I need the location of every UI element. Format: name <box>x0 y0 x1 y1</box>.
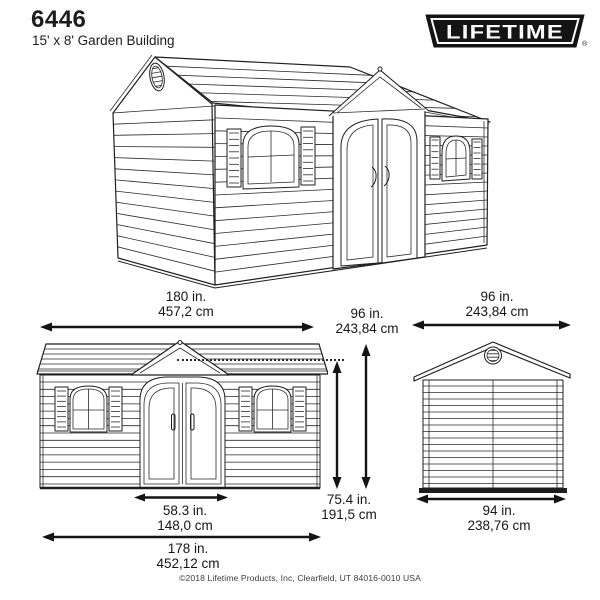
dim-value-metric: 238,76 cm <box>437 518 561 533</box>
dim-label-overall-depth: 96 in. 243,84 cm <box>435 289 559 319</box>
dim-value-metric: 457,2 cm <box>124 304 248 319</box>
front-right-window <box>239 386 306 432</box>
dim-value-inches: 96 in. <box>305 306 429 321</box>
front-elevation-illustration <box>33 340 328 492</box>
side-gable-vent-icon <box>484 347 502 364</box>
logo-brand-text: LIFETIME <box>446 23 564 44</box>
front-left-window <box>55 386 122 432</box>
dim-label-overall-width: 180 in. 457,2 cm <box>124 289 248 319</box>
dim-value-inches: 94 in. <box>437 503 561 518</box>
dim-value-inches: 96 in. <box>435 289 559 304</box>
product-name: 15' x 8' Garden Building <box>32 33 175 48</box>
dim-value-inches: 178 in. <box>126 541 250 556</box>
dim-label-base-depth: 94 in. 238,76 cm <box>437 503 561 533</box>
dim-value-inches: 180 in. <box>124 289 248 304</box>
side-elevation-illustration <box>411 339 571 495</box>
copyright-text: ©2018 Lifetime Products, Inc, Clearfield… <box>150 573 450 583</box>
spec-sheet-page: { "header": { "model_number": "6446", "p… <box>0 0 600 600</box>
dim-arrow-overall-width <box>40 320 314 334</box>
dim-value-metric: 148,0 cm <box>123 518 247 533</box>
dim-value-metric: 243,84 cm <box>305 321 429 336</box>
eave-reference-dotted-line <box>177 359 344 361</box>
front-doors <box>140 377 225 488</box>
dim-arrow-eave-height <box>330 361 344 489</box>
dim-label-door-width: 58.3 in. 148,0 cm <box>123 503 247 533</box>
dim-label-peak-height: 96 in. 243,84 cm <box>305 306 429 336</box>
dim-value-inches: 75.4 in. <box>287 492 411 507</box>
dim-label-base-width: 178 in. 452,12 cm <box>126 541 250 571</box>
front-right-window <box>430 136 482 181</box>
registered-trademark-icon: ® <box>582 41 587 48</box>
dim-value-metric: 191,5 cm <box>287 507 411 522</box>
perspective-view-illustration <box>85 55 525 295</box>
left-shutter <box>430 137 440 179</box>
dim-value-metric: 452,12 cm <box>126 556 250 571</box>
model-number: 6446 <box>31 6 86 34</box>
dim-value-inches: 58.3 in. <box>123 503 247 518</box>
left-door <box>341 119 378 266</box>
dim-value-metric: 243,84 cm <box>435 304 559 319</box>
gable-finial <box>178 341 182 345</box>
front-left-window <box>227 126 315 189</box>
dim-label-eave-height: 75.4 in. 191,5 cm <box>287 492 411 522</box>
lifetime-logo: LIFETIME <box>425 14 585 48</box>
right-shutter <box>472 139 482 179</box>
dim-arrow-overall-depth <box>412 318 571 332</box>
dim-arrow-peak-height <box>359 344 373 489</box>
